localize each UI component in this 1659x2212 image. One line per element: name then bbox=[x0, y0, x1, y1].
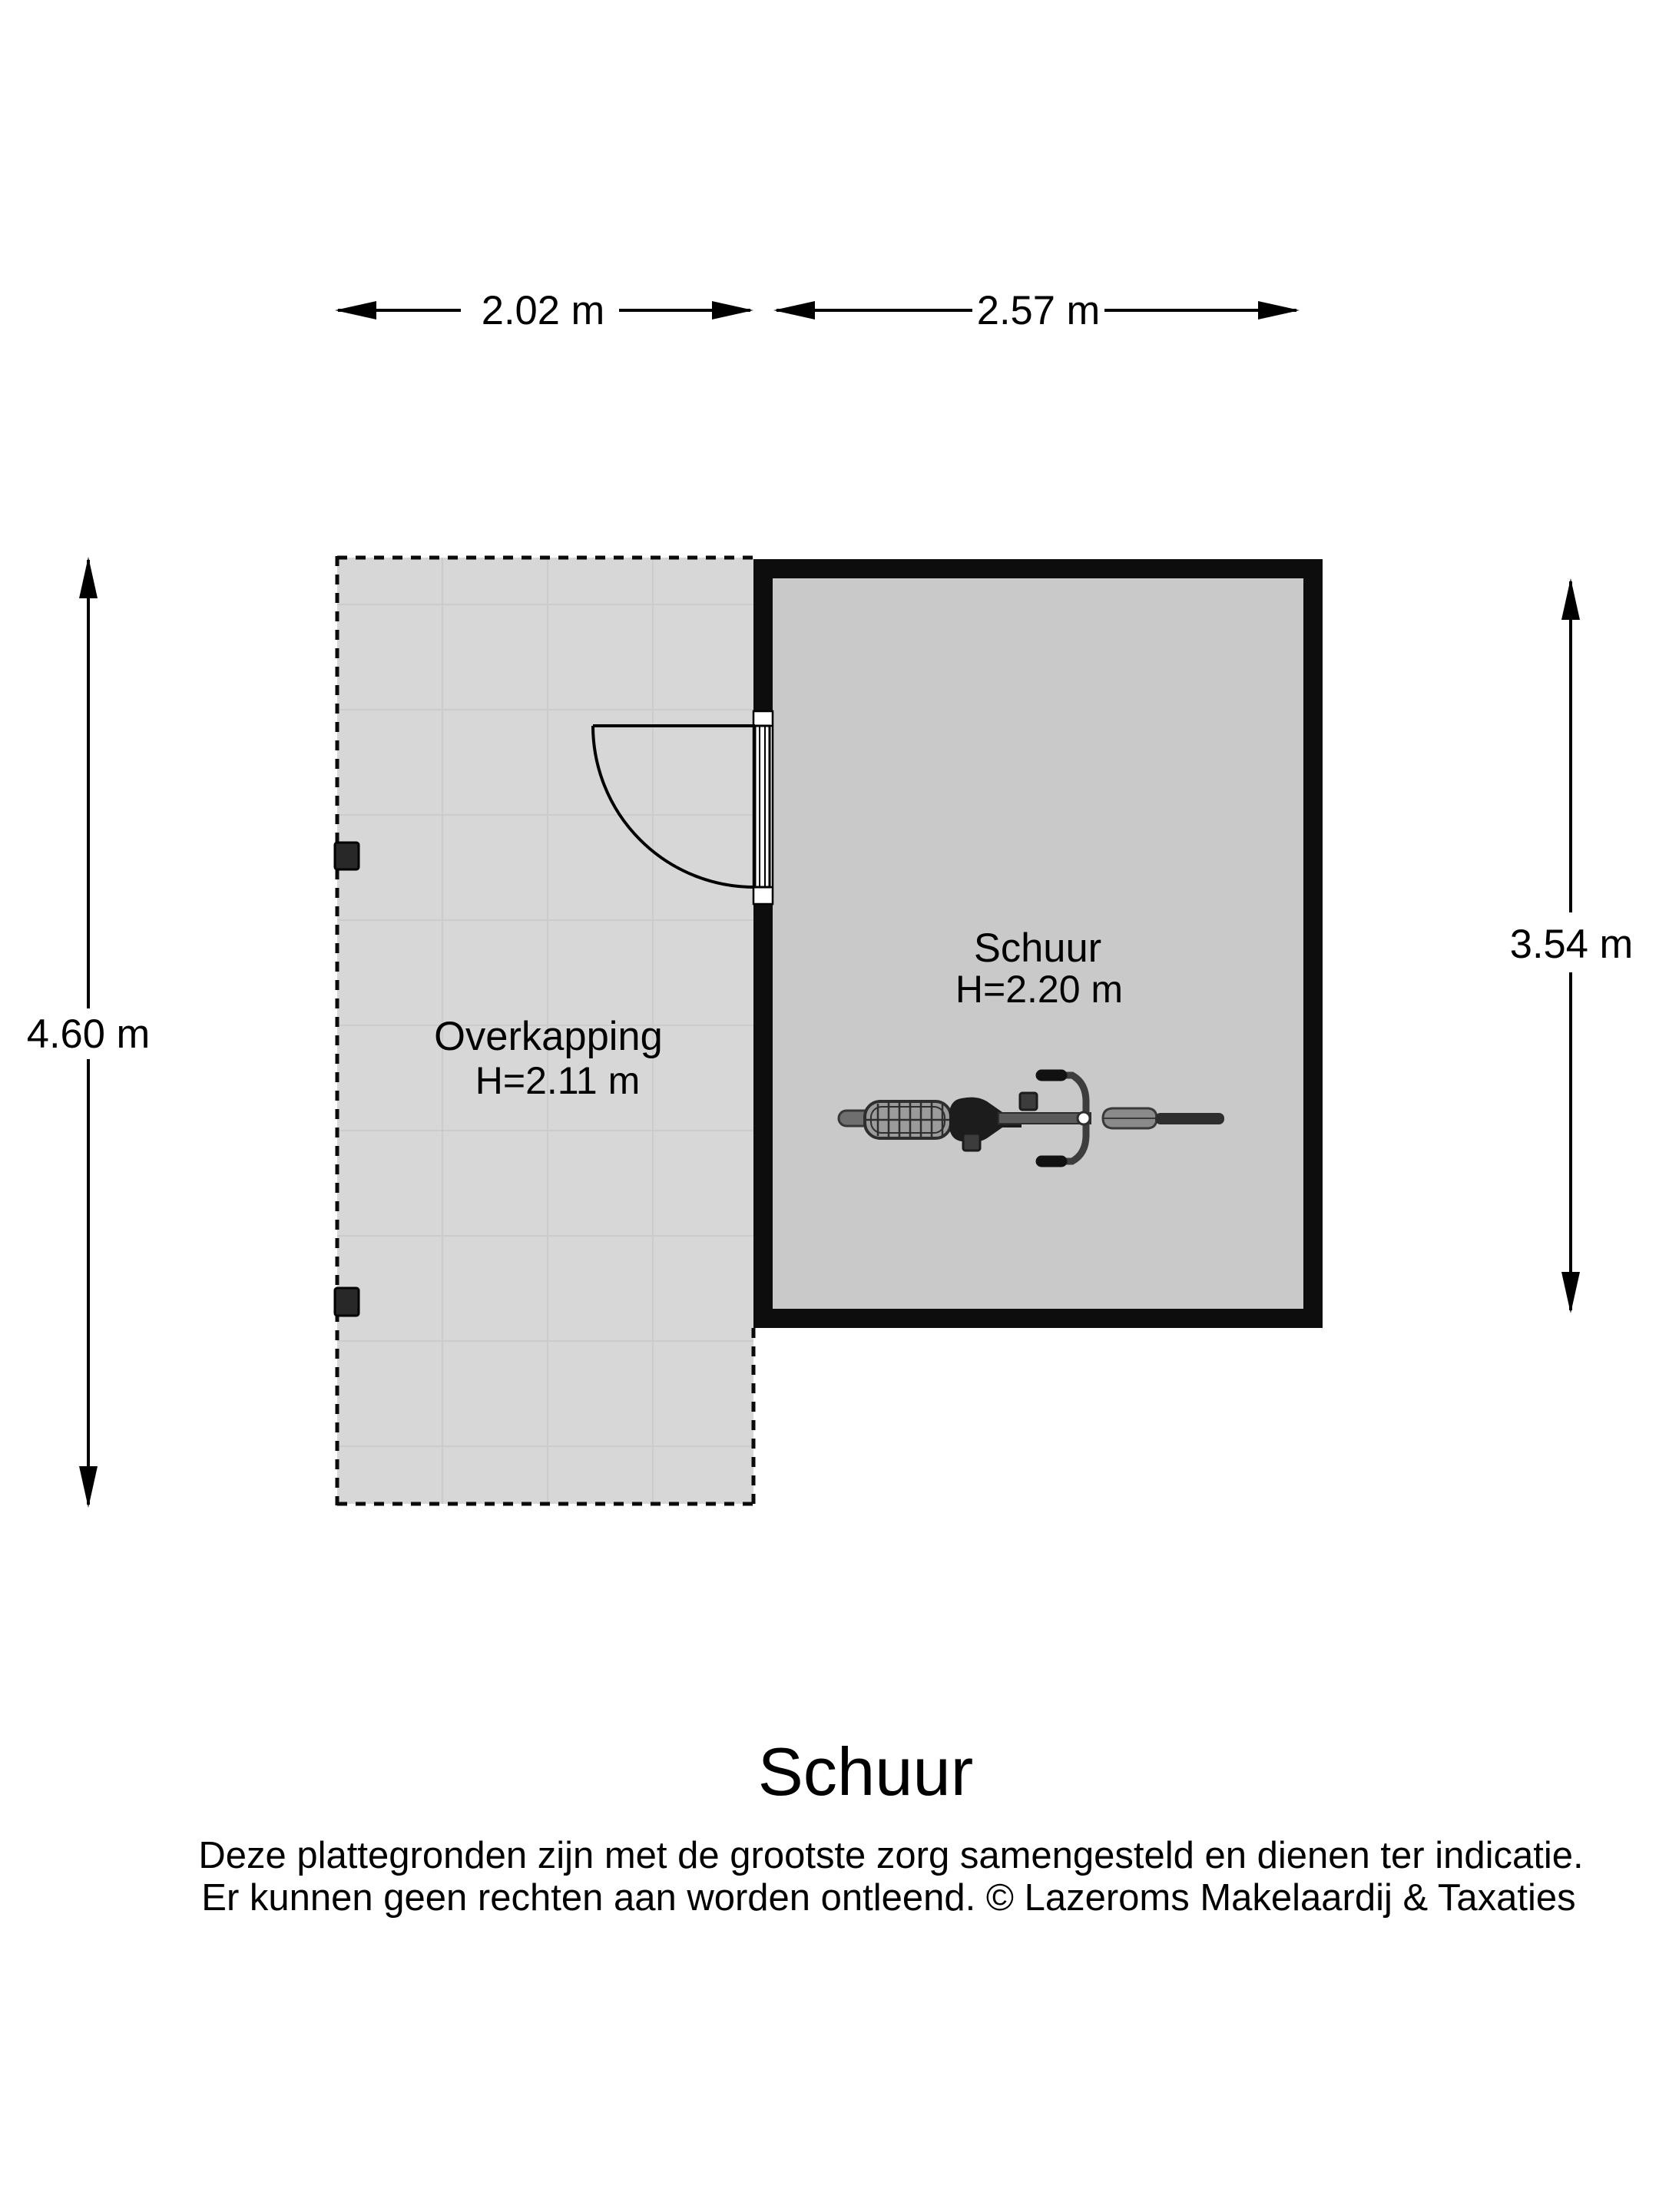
svg-text:2.57 m: 2.57 m bbox=[977, 288, 1101, 333]
svg-text:Schuur: Schuur bbox=[974, 926, 1101, 971]
svg-text:Schuur: Schuur bbox=[758, 1734, 973, 1810]
svg-text:Deze plattegronden zijn met de: Deze plattegronden zijn met de grootste … bbox=[198, 1835, 1583, 1876]
svg-text:H=2.20 m: H=2.20 m bbox=[955, 968, 1123, 1011]
svg-text:Er kunnen geen rechten aan wor: Er kunnen geen rechten aan worden ontlee… bbox=[201, 1877, 1575, 1919]
svg-text:4.60 m: 4.60 m bbox=[27, 1012, 151, 1057]
svg-text:H=2.11 m: H=2.11 m bbox=[475, 1059, 640, 1102]
svg-text:3.54 m: 3.54 m bbox=[1510, 922, 1634, 967]
svg-text:2.02 m: 2.02 m bbox=[482, 288, 605, 333]
svg-text:Overkapping: Overkapping bbox=[434, 1014, 663, 1059]
